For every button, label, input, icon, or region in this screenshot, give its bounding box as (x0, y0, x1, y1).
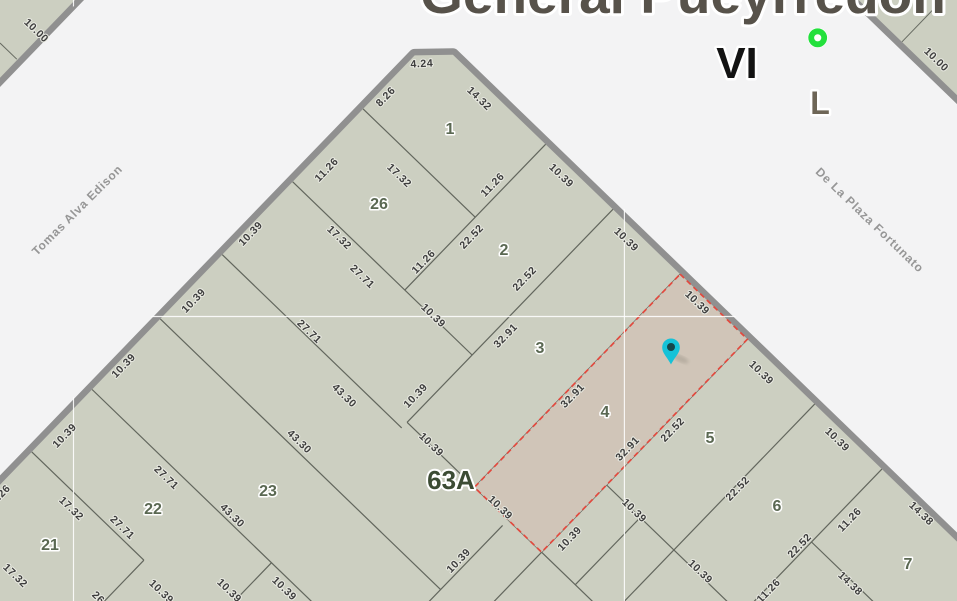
svg-text:21: 21 (41, 537, 59, 554)
svg-text:4: 4 (601, 404, 610, 421)
svg-text:General Pueyrredon: General Pueyrredon (420, 0, 946, 25)
svg-text:7: 7 (904, 556, 913, 573)
svg-text:63A: 63A (427, 465, 475, 495)
svg-text:1: 1 (446, 121, 455, 138)
svg-text:VI: VI (716, 39, 758, 88)
svg-text:26: 26 (370, 196, 388, 213)
svg-text:L: L (810, 85, 830, 121)
svg-text:4.24: 4.24 (410, 57, 433, 70)
svg-text:3: 3 (536, 340, 545, 357)
svg-text:6: 6 (773, 498, 782, 515)
svg-text:23: 23 (259, 483, 277, 500)
svg-text:5: 5 (706, 430, 715, 447)
svg-text:2: 2 (500, 242, 509, 259)
svg-text:22: 22 (144, 501, 162, 518)
